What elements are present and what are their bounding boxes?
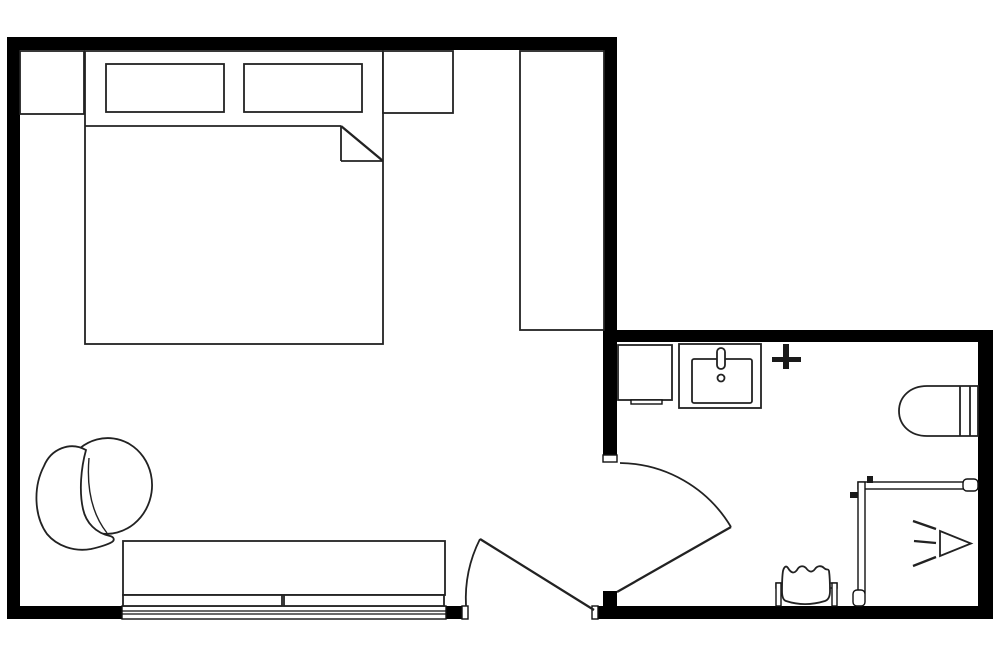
shower-top-cap	[963, 479, 978, 491]
shower-head	[940, 531, 971, 556]
bath-cabinet-tab	[631, 400, 662, 404]
shower-spray-line-1	[913, 521, 936, 529]
left-wall	[7, 37, 20, 619]
toilet-body	[899, 386, 978, 436]
bedroom-door-arc	[466, 539, 480, 606]
floorplan-svg	[0, 0, 1000, 667]
vanity-faucet	[717, 348, 725, 369]
shower-side-cap	[853, 590, 865, 606]
divider-wall	[603, 37, 617, 455]
bath-right-wall	[978, 330, 993, 619]
top-wall	[7, 37, 617, 50]
shower-spray-line-2	[914, 541, 936, 543]
wall-cross-fixture-horizontal	[772, 357, 801, 362]
nightstand-left	[20, 51, 84, 114]
pillow-left	[106, 64, 224, 112]
door-stop-bedroom-left	[462, 606, 468, 619]
towel-post-left	[776, 583, 781, 606]
floorplan-page	[0, 0, 1000, 667]
bottom-wall-bath	[598, 606, 993, 619]
towel-post-right	[832, 583, 837, 606]
nightstand-right	[383, 51, 453, 113]
bottom-wall-stub	[446, 606, 462, 619]
bottom-wall-left	[7, 606, 122, 619]
door-stop-bedroom-right	[592, 606, 598, 619]
bench-rail-left	[123, 595, 282, 606]
divider-hinge-block	[603, 591, 617, 607]
shower-top-panel	[858, 482, 978, 489]
bench-rail-right	[284, 595, 444, 606]
door-stop-bathroom-top	[603, 455, 617, 462]
wall-cross-fixture-vertical	[783, 344, 789, 369]
bench	[123, 541, 445, 595]
bath-top-wall	[617, 330, 993, 342]
bathroom-door-leaf	[617, 527, 731, 592]
shower-side-panel	[858, 482, 865, 593]
bedroom-door-leaf	[480, 539, 594, 610]
pillow-right	[244, 64, 362, 112]
shower-hinge-left	[850, 492, 858, 498]
bath-cabinet	[618, 345, 672, 400]
shower-hinge-top	[867, 476, 873, 483]
towel	[782, 566, 830, 604]
bathroom-door-arc	[620, 463, 731, 527]
wardrobe	[520, 51, 604, 330]
window-frame	[122, 606, 446, 619]
vanity-drain	[718, 375, 725, 382]
shower-spray-line-3	[913, 557, 936, 566]
